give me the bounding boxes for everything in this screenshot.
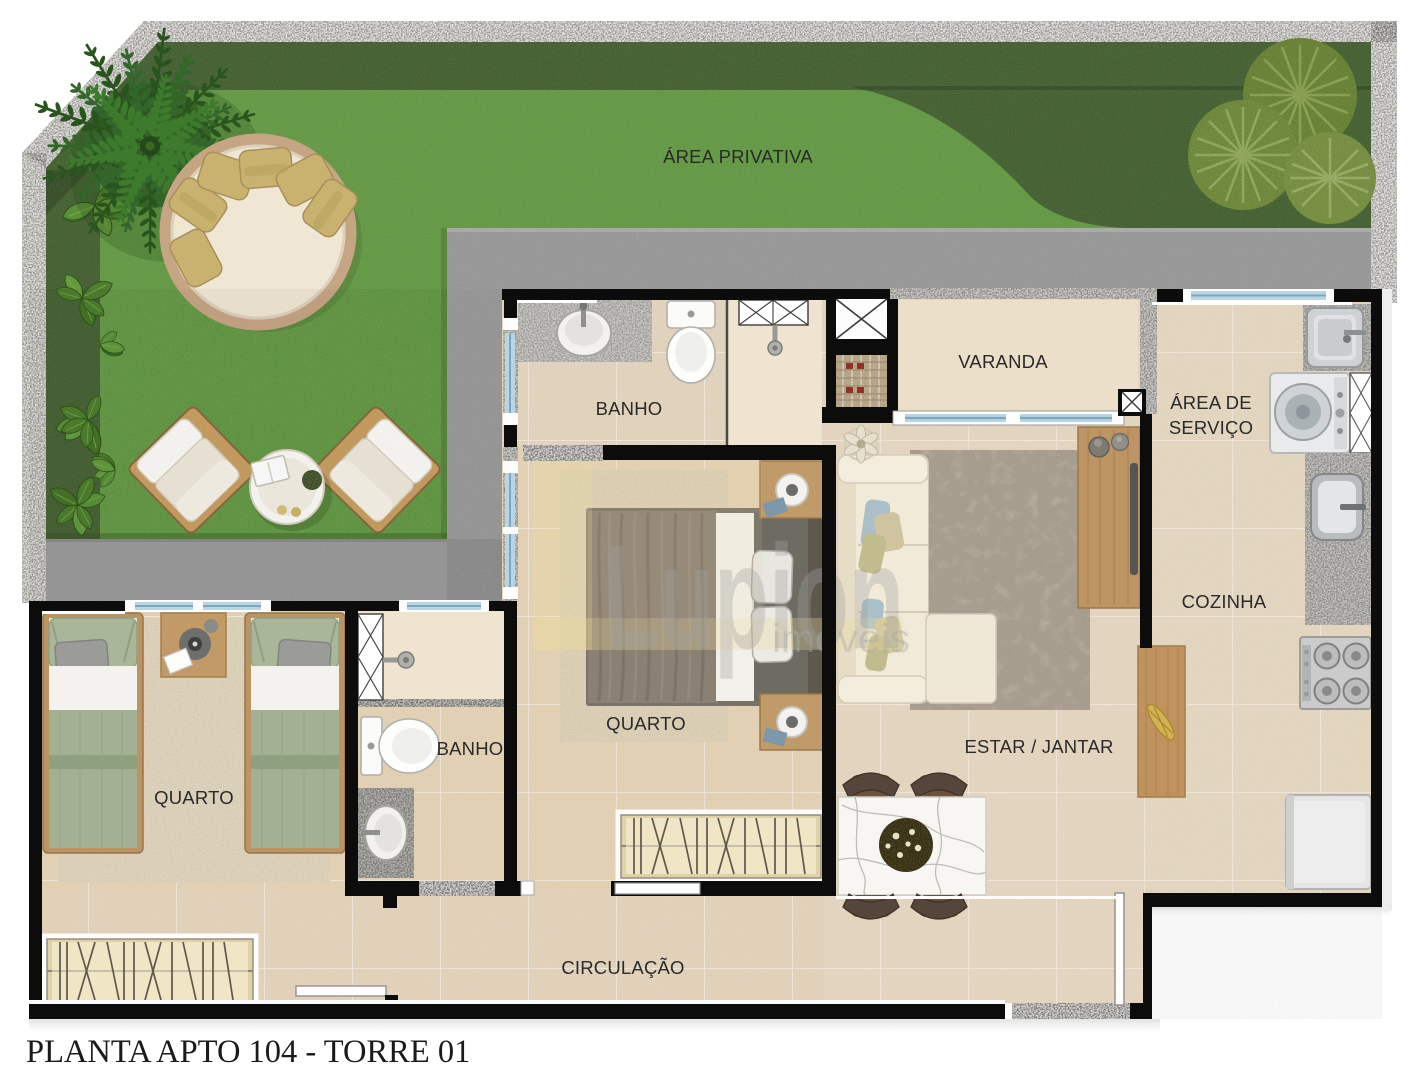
svg-text:BANHO: BANHO [596, 398, 663, 419]
svg-text:COZINHA: COZINHA [1182, 591, 1267, 612]
svg-text:ESTAR / JANTAR: ESTAR / JANTAR [964, 736, 1113, 757]
svg-text:PLANTA APTO 104 - TORRE 01: PLANTA APTO 104 - TORRE 01 [26, 1034, 470, 1070]
svg-text:QUARTO: QUARTO [606, 713, 686, 734]
svg-text:BANHO: BANHO [437, 738, 504, 759]
svg-text:QUARTO: QUARTO [154, 787, 234, 808]
svg-text:imóveis: imóveis [772, 617, 910, 661]
svg-text:SERVIÇO: SERVIÇO [1169, 417, 1253, 438]
svg-text:ÁREA PRIVATIVA: ÁREA PRIVATIVA [663, 146, 813, 167]
svg-text:CIRCULAÇÃO: CIRCULAÇÃO [561, 957, 684, 978]
svg-text:VARANDA: VARANDA [958, 351, 1048, 372]
svg-text:ÁREA DE: ÁREA DE [1170, 392, 1252, 413]
